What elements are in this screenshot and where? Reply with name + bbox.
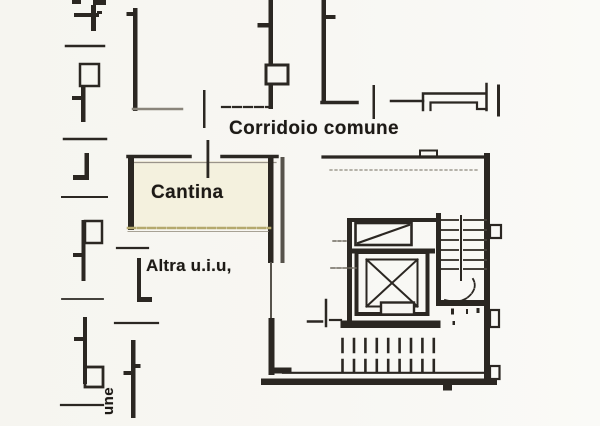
- other-unit-label: Altra u.i.u,: [146, 256, 232, 276]
- stairs: [436, 213, 489, 325]
- floor-plan-drawing: [0, 0, 600, 426]
- cantina-label: Cantina: [151, 182, 223, 204]
- hatch-tick-rows: [283, 339, 483, 373]
- stair-direction-arrow: [445, 279, 475, 301]
- vertical-edge-label: une: [100, 380, 116, 422]
- stairwell: [330, 213, 489, 328]
- upper-rooms-walls: [127, 0, 499, 128]
- corridor-label: Corridoio comune: [229, 118, 399, 140]
- corridor-bench-shape: [391, 84, 499, 115]
- elevator-shaft: [357, 252, 428, 315]
- floor-plan-scan: Corridoio comune Cantina Altra u.i.u, un…: [0, 0, 600, 426]
- ramp-diagonal: [358, 225, 409, 243]
- stair-block-building: [261, 151, 501, 391]
